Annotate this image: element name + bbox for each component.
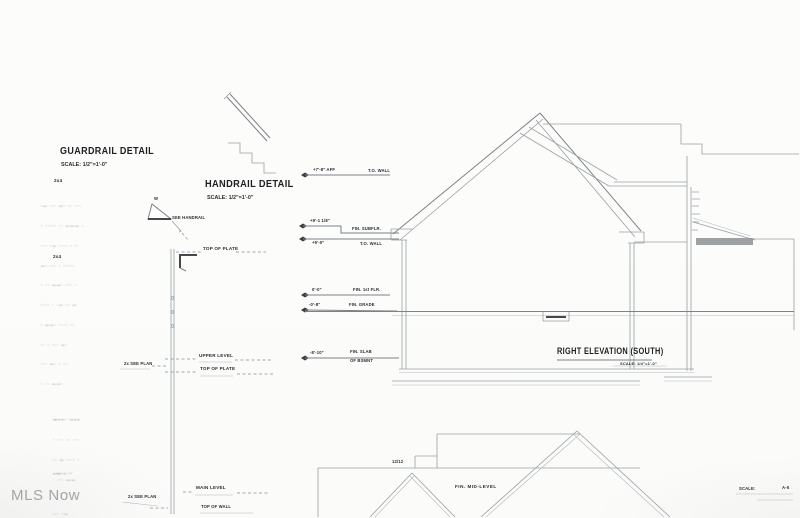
lower-drawing-label: FIN. MID-LEVEL [455,485,497,490]
datum-label: T.O. WALL [368,169,390,173]
guardrail-section [120,249,274,514]
guardrail-detail-scale: SCALE: 1/2"=1'-0" [61,163,107,168]
label-upper-level: UPPER LEVEL [199,354,233,359]
datum-label: FIN. SUBFLR. [352,227,381,231]
datum-label: T.O. WALL [360,242,382,246]
house-rear-wing [520,124,799,371]
datum-elevation: +9'-0" [312,241,324,245]
datum-label: FIN. GRADE [349,303,375,307]
handrail-detail-scale: SCALE: 1/2"=1'-0" [207,196,253,201]
label-top-of-plate-upper: TOP OF PLATE [203,247,238,252]
right-elevation-title: RIGHT ELEVATION (SOUTH) [557,347,663,356]
house-main-gable [391,113,644,312]
datum-elevation: +9'-1 1/8" [310,219,330,223]
label-rail-size: W [154,197,158,201]
label-see-handrail: SEE HANDRAIL [172,216,205,220]
handrail-detail-title: HANDRAIL DETAIL [205,179,294,190]
datum-elevation: -8'-10" [310,351,324,355]
datum-elevation: -0'-8" [309,303,320,307]
mls-watermark: MLS Now [11,487,80,504]
label-main-level: MAIN LEVEL [196,486,226,491]
right-elevation-scale: SCALE: 1/4"=1'-0" [620,362,657,366]
scanned-architectural-drawing: GUARDRAIL DETAIL SCALE: 1/2"=1'-0" HANDR… [0,0,800,518]
datum-label: FIN. SLAB [350,350,372,354]
grade-and-foundation [305,312,794,501]
guardrail-detail-title: GUARDRAIL DETAIL [60,147,154,157]
label-top-of-plate-lower: TOP OF PLATE [200,367,235,372]
datum-elevation: +7'-8" AFF [313,168,335,172]
handrail-rail-drawing [224,92,276,173]
datum-label: FIN. 1st FLR. [353,288,381,292]
lower-partial-elevation [318,431,670,517]
label-top-of-wall: TOP OF WALL [201,505,231,509]
datum-elevation: 0'-0" [312,288,322,292]
footer-sheet-number: A-5 [782,486,789,490]
datum-marker-lines [299,173,399,361]
datum-label2: OF BSMNT [350,359,373,363]
illegible-spec-notes: ·— ··· ―· ·· ··· · ····· ·· ——— · ··· ·—… [41,190,136,401]
label-stud-upper: 2x4 [54,179,62,184]
label-see-plan-lower: 2x SEE PLAN [128,495,156,499]
guardrail-bracket-detail [148,204,188,240]
footer-scale-label: SCALE: [739,487,756,491]
lower-drawing-pitch: 12/12 [392,460,403,464]
